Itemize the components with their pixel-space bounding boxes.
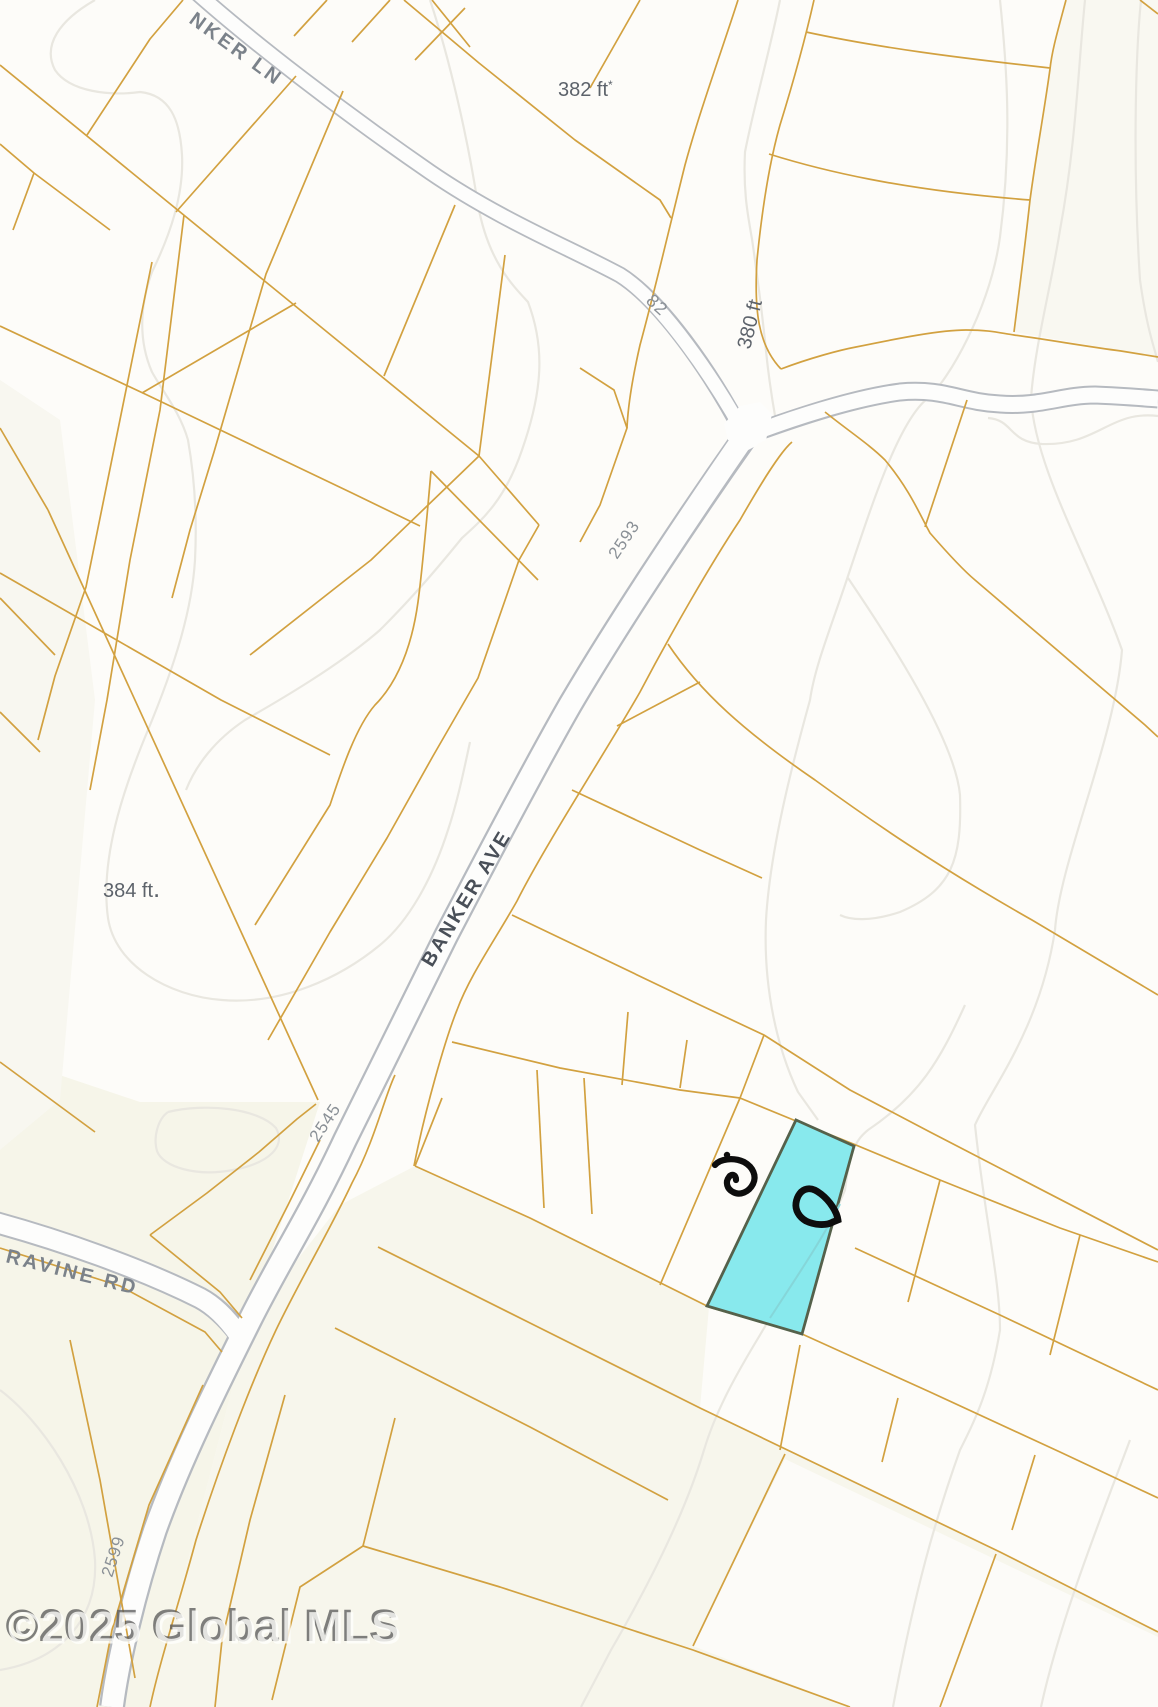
svg-text:©2025 Global MLS: ©2025 Global MLS	[8, 1603, 401, 1654]
svg-text:382 ft*: 382 ft*	[558, 78, 613, 101]
